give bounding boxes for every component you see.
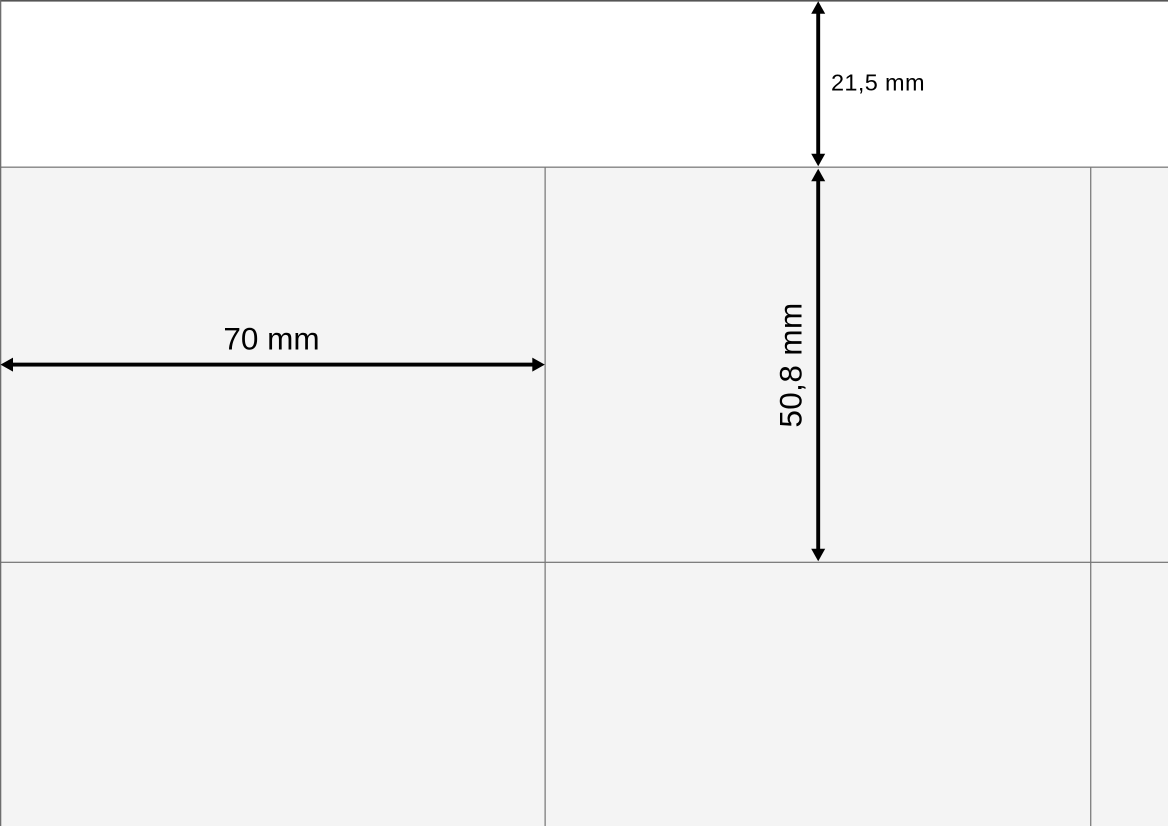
svg-text:70 mm: 70 mm [223,321,319,357]
svg-text:50,8 mm: 50,8 mm [773,302,809,427]
svg-text:21,5 mm: 21,5 mm [831,70,925,96]
